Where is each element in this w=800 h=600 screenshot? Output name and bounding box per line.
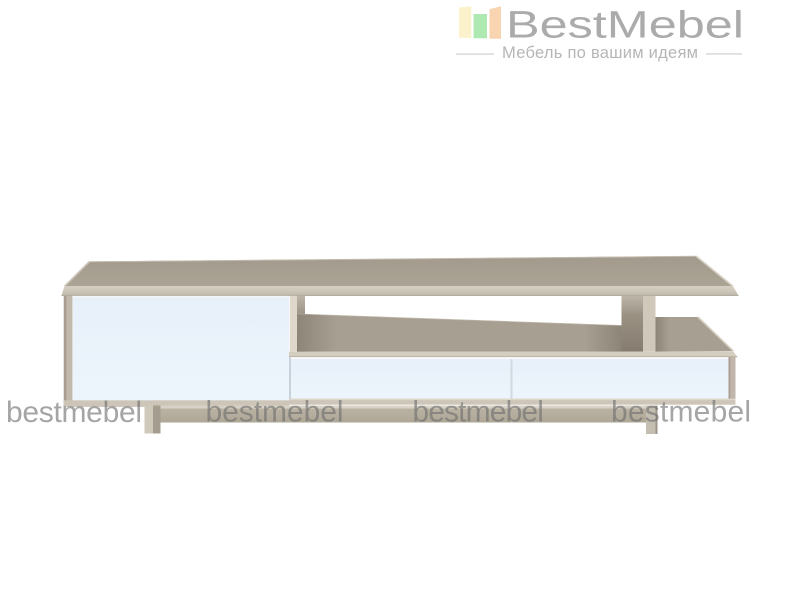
svg-text:bestmebel: bestmebel <box>412 395 544 428</box>
svg-text:Мебель по вашим идеям: Мебель по вашим идеям <box>502 44 698 62</box>
svg-text:bestmebel: bestmebel <box>611 395 751 428</box>
svg-text:BestMebel: BestMebel <box>506 5 744 47</box>
svg-text:bestmebel: bestmebel <box>206 395 344 428</box>
svg-text:bestmebel: bestmebel <box>6 396 142 429</box>
